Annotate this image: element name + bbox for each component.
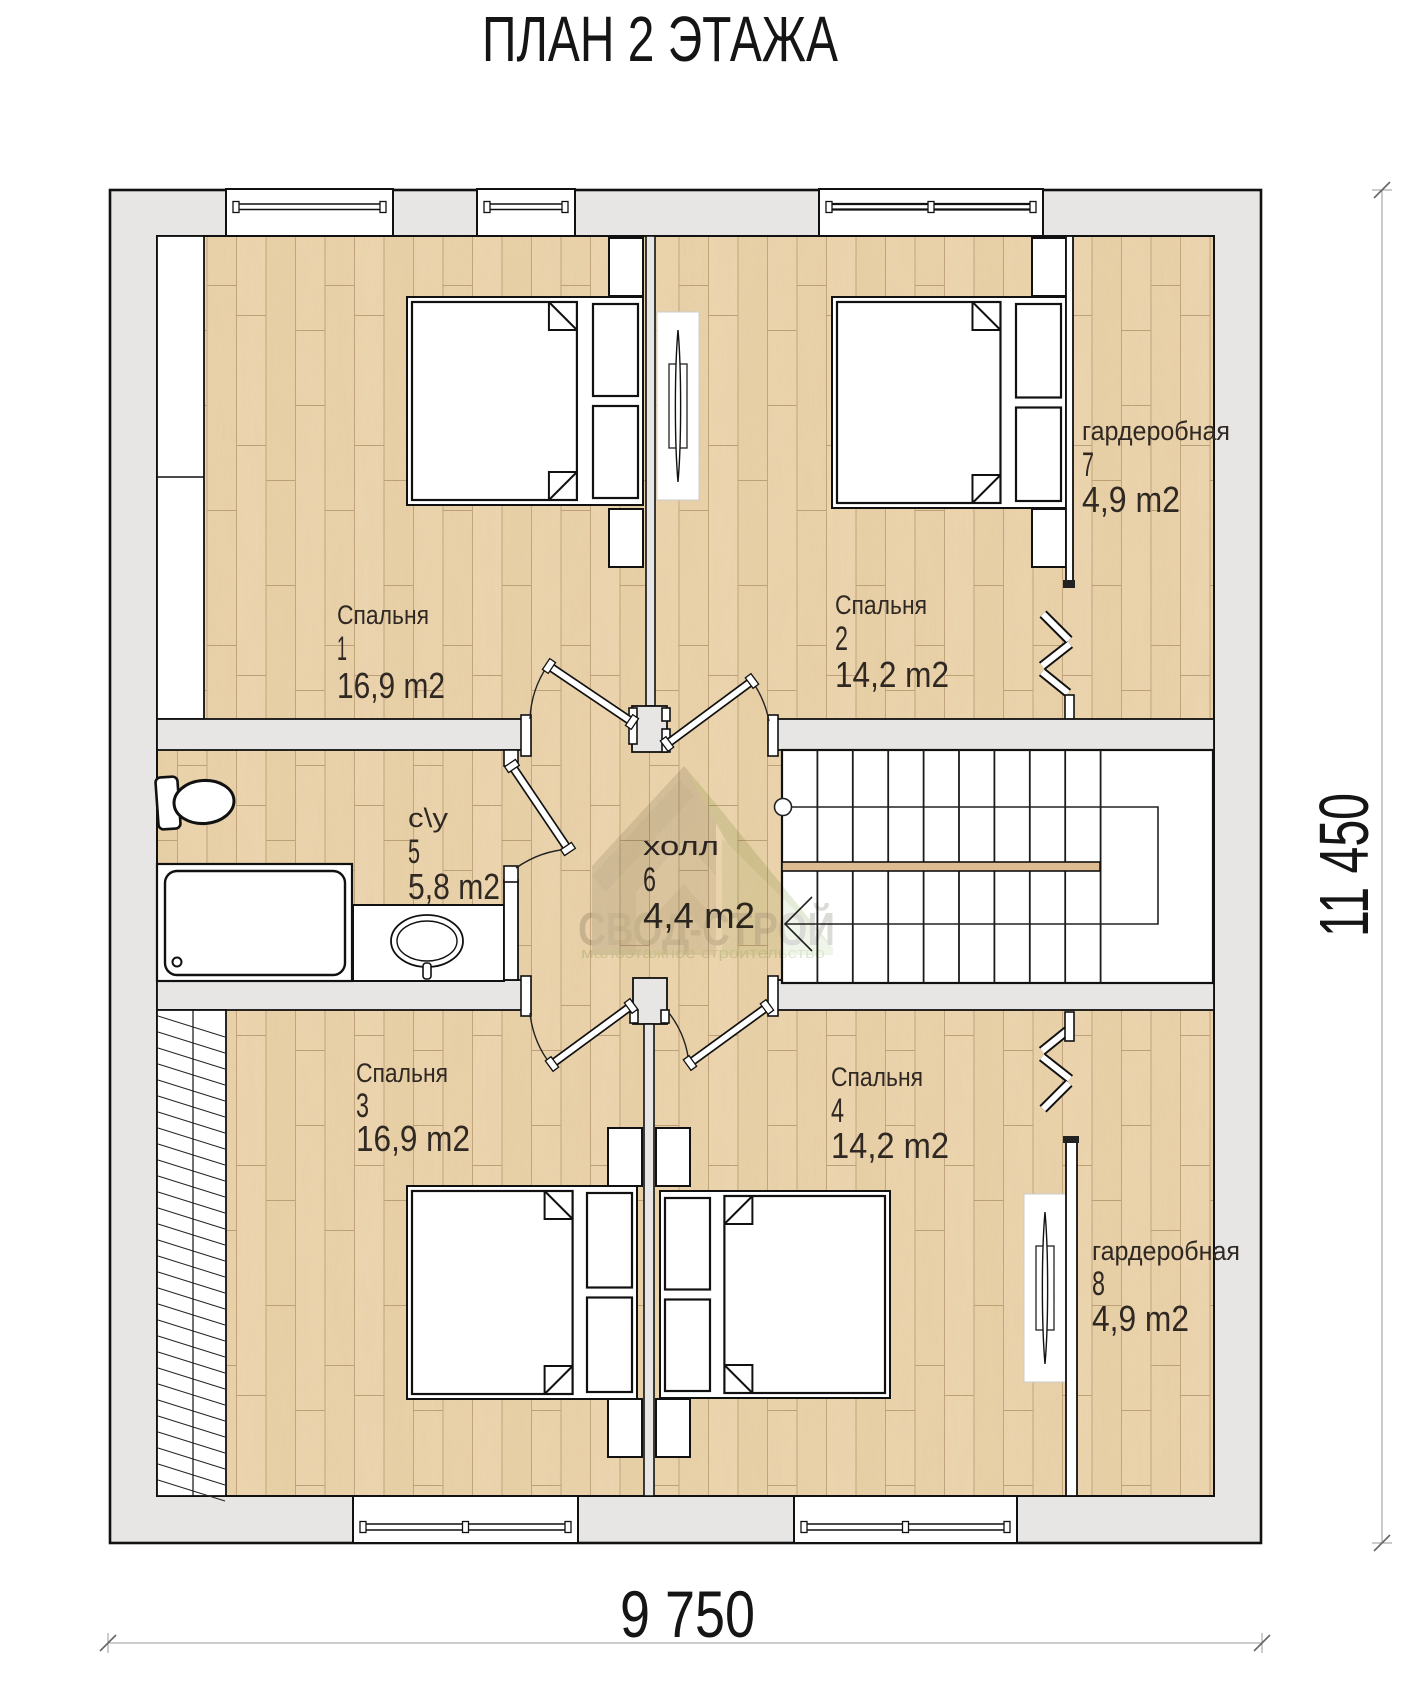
svg-text:14,2 m2: 14,2 m2 xyxy=(835,654,949,695)
svg-text:16,9 m2: 16,9 m2 xyxy=(337,665,445,706)
svg-text:Спальня: Спальня xyxy=(356,1058,448,1088)
svg-text:11 450: 11 450 xyxy=(1305,793,1383,937)
svg-text:с\у: с\у xyxy=(408,803,449,833)
svg-text:гардеробная: гардеробная xyxy=(1082,416,1230,446)
svg-text:ПЛАН 2 ЭТАЖА: ПЛАН 2 ЭТАЖА xyxy=(482,3,838,75)
svg-text:14,2 m2: 14,2 m2 xyxy=(831,1125,949,1166)
svg-text:малоэтажное строительство: малоэтажное строительство xyxy=(581,945,825,962)
svg-text:4,9 m2: 4,9 m2 xyxy=(1092,1298,1189,1339)
svg-text:9 750: 9 750 xyxy=(620,1577,755,1651)
svg-text:4,9 m2: 4,9 m2 xyxy=(1082,479,1180,520)
svg-text:гардеробная: гардеробная xyxy=(1092,1236,1240,1266)
svg-text:Спальня: Спальня xyxy=(337,600,429,630)
svg-text:16,9 m2: 16,9 m2 xyxy=(356,1118,470,1159)
svg-text:5,8 m2: 5,8 m2 xyxy=(408,866,500,907)
svg-text:Спальня: Спальня xyxy=(831,1062,923,1092)
svg-text:1: 1 xyxy=(337,630,347,668)
svg-text:Спальня: Спальня xyxy=(835,590,927,620)
svg-text:2: 2 xyxy=(835,620,848,658)
